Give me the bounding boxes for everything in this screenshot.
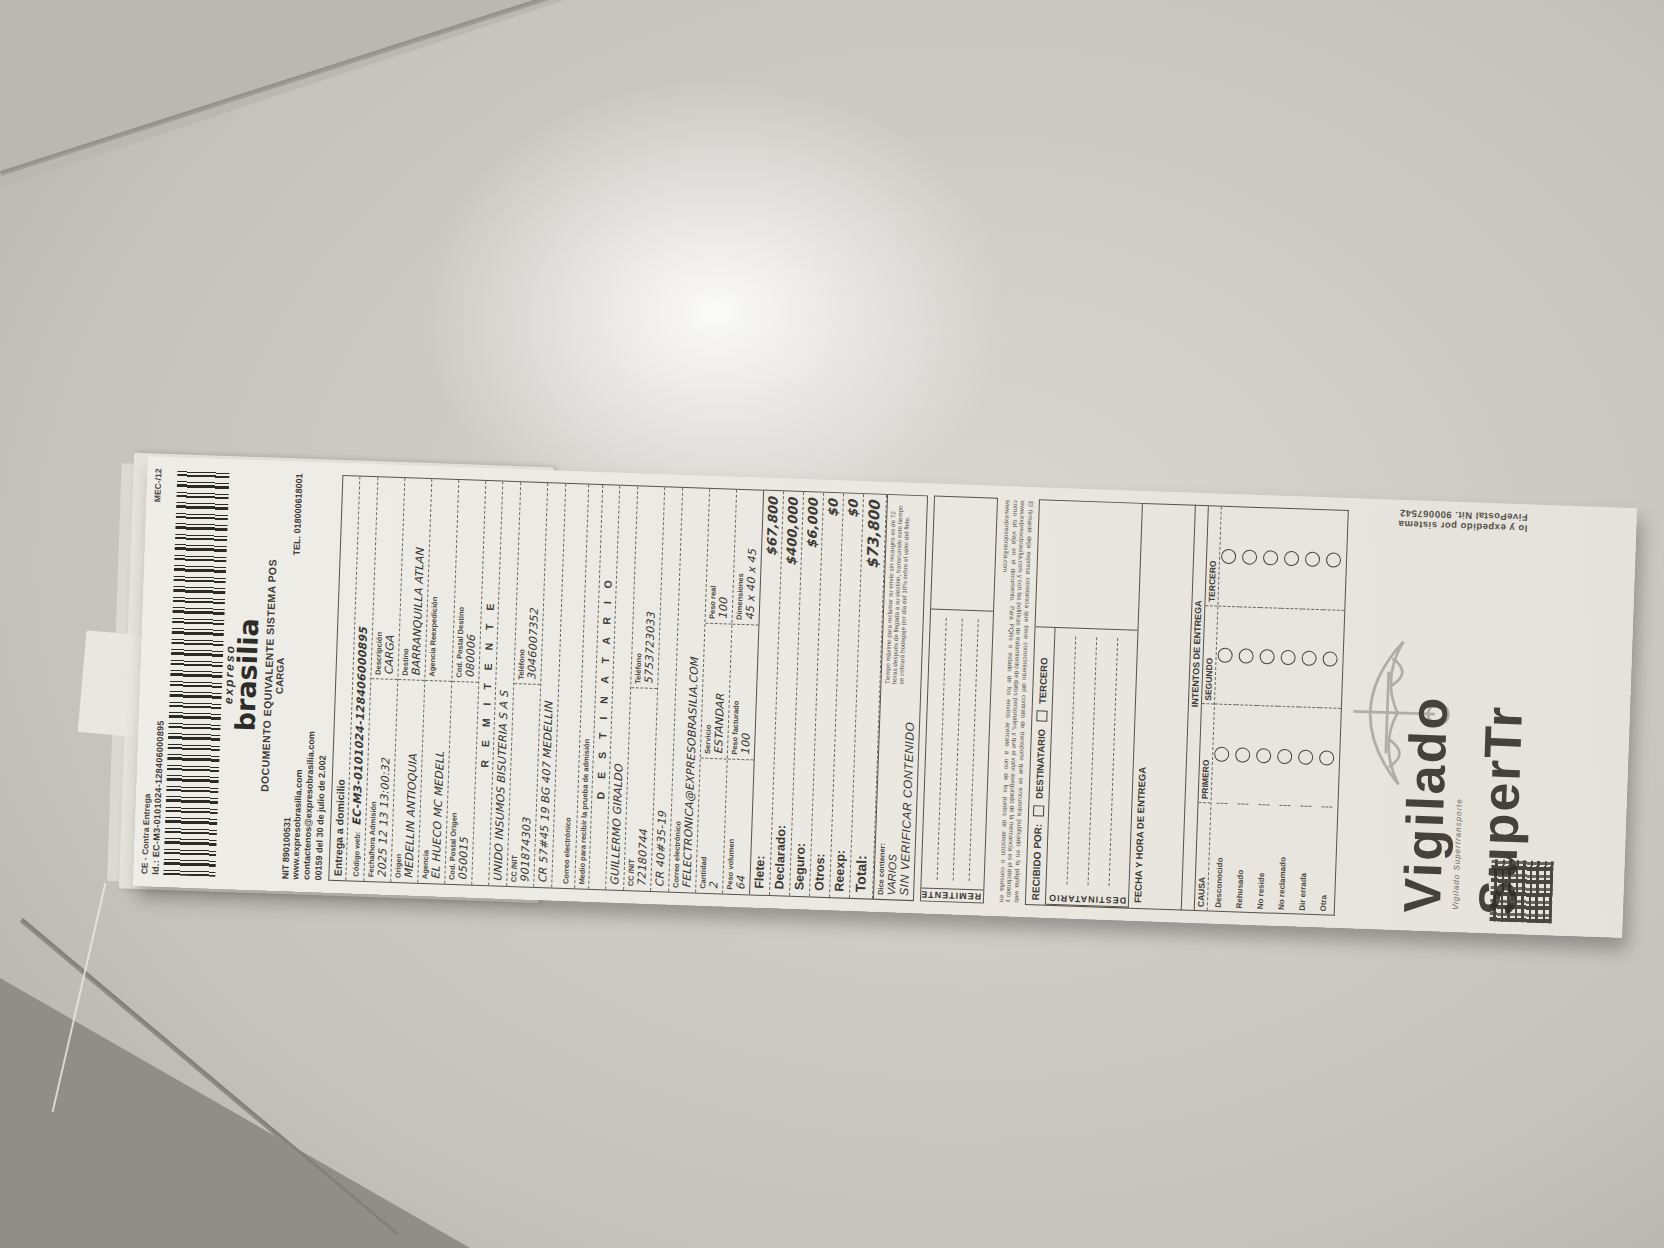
billed-weight-cell: Peso facturado 100 [728, 624, 759, 760]
received-by-section: RECIBIDO POR: DESTINATARIO TERCERO DESTI… [1024, 499, 1142, 908]
sender-signature-lines [921, 610, 993, 890]
attempt-mark-circle [1298, 749, 1314, 765]
attempt-mark-circle [1242, 549, 1258, 565]
option-tercero: TERCERO [1036, 657, 1049, 704]
attempt-mark-circle [1326, 552, 1342, 568]
received-by-blank-box [1035, 500, 1142, 630]
attempt-mark-circle [1319, 750, 1335, 766]
charge-label: Seguro: [792, 843, 809, 891]
attempts-rows: DesconocidoRehusadoNo resideNo reclamado… [1208, 507, 1348, 915]
charge-value: $73,800 [863, 500, 883, 569]
charge-label: Otros: [812, 853, 828, 891]
attempt-mark-circle [1235, 747, 1251, 763]
fivepostal-edge-print: lo y expedido por sistema FivePostal Nit… [1352, 506, 1528, 534]
recipient-signature-label: DESTINATARIO [1045, 892, 1128, 908]
charge-label: Flete: [752, 855, 768, 889]
form-code-label: MEC-/12 [152, 468, 163, 502]
attempt-mark-circle [1322, 651, 1338, 667]
qr-code [1489, 859, 1553, 923]
storage-fineprint: Tiempo máximo para reclamar su envío sin… [881, 495, 927, 689]
cause-name: Desconocido [1213, 803, 1228, 911]
received-by-label: RECIBIDO POR: [1030, 824, 1044, 901]
charge-label: Reexp: [832, 850, 848, 892]
charge-label: Total: [852, 855, 871, 893]
attempt-mark-circle [1217, 648, 1233, 664]
shipment-info-table: Entrega a domicilio Código web: EC-M3-01… [328, 475, 928, 901]
receipt-footer: Vigilado Vigilado Supertransporte SuperT… [1338, 510, 1567, 923]
attempt-mark-circle [1263, 550, 1279, 566]
floor-tile-top-left [0, 0, 640, 210]
charges-table: Flete:$67,800Declarado:$400,000Seguro:$6… [749, 491, 887, 899]
attempt-mark-circle [1214, 746, 1230, 762]
sender-signature-blank-cell [931, 497, 997, 612]
dimensions-cell: Dimensiones 45 x 40 x 45 [732, 490, 763, 625]
attempt-cell [1323, 510, 1347, 609]
checkbox-tercero [1036, 711, 1047, 722]
attempt-mark-circle [1256, 748, 1272, 764]
charge-value: $0 [825, 499, 841, 518]
attempt-mark-circle [1221, 548, 1237, 564]
option-destinatario: DESTINATARIO [1033, 729, 1046, 799]
service-cell: Servicio ESTANDAR [701, 623, 732, 759]
attempt-mark-circle [1277, 748, 1293, 764]
charge-value: $0 [845, 500, 861, 519]
attempt-mark-circle [1238, 648, 1254, 664]
charge-value: $67,800 [764, 497, 781, 557]
attempt-mark-circle [1280, 650, 1296, 666]
cause-name: Dir errada [1296, 806, 1311, 914]
waybill-receipt: CE - Contra Entrega MEC-/12 Id.: EC-M3-0… [133, 456, 1637, 938]
checkbox-destinatario [1033, 806, 1044, 817]
quantity-cell: Cantidad 2 [696, 758, 727, 894]
cause-name: Rehusado [1233, 803, 1248, 911]
sender-email-label: Correo electrónico [561, 817, 572, 884]
cause-name: No reclamado [1275, 805, 1290, 913]
volume-weight-cell: Peso volumen 64 [723, 759, 754, 895]
web-code-label: Código web: [351, 832, 362, 877]
charge-value: $400,000 [783, 497, 800, 566]
sender-signature-label: REMITENTE [921, 887, 983, 902]
real-weight-cell: Peso real 100 [705, 489, 736, 624]
charge-value: $6,000 [804, 498, 821, 549]
attempt-mark-circle [1284, 551, 1300, 567]
recipient-signature-lines [1046, 628, 1137, 895]
charge-label: Declarado: [772, 825, 789, 890]
cause-name: No reside [1254, 804, 1269, 912]
delivery-attempts-table: INTENTOS DE ENTREGA CAUSA PRIMERO SEGUND… [1181, 505, 1348, 916]
attempt-mark-circle [1259, 649, 1275, 665]
attempt-mark-circle [1305, 551, 1321, 567]
sender-signature-box: REMITENTE [920, 496, 998, 904]
receipt-rotated-wrapper: CE - Contra Entrega MEC-/12 Id.: EC-M3-0… [133, 456, 1637, 938]
photo-scene: CE - Contra Entrega MEC-/12 Id.: EC-M3-0… [0, 0, 1664, 1248]
attempt-mark-circle [1301, 651, 1317, 667]
cause-name: Otra [1317, 806, 1332, 914]
